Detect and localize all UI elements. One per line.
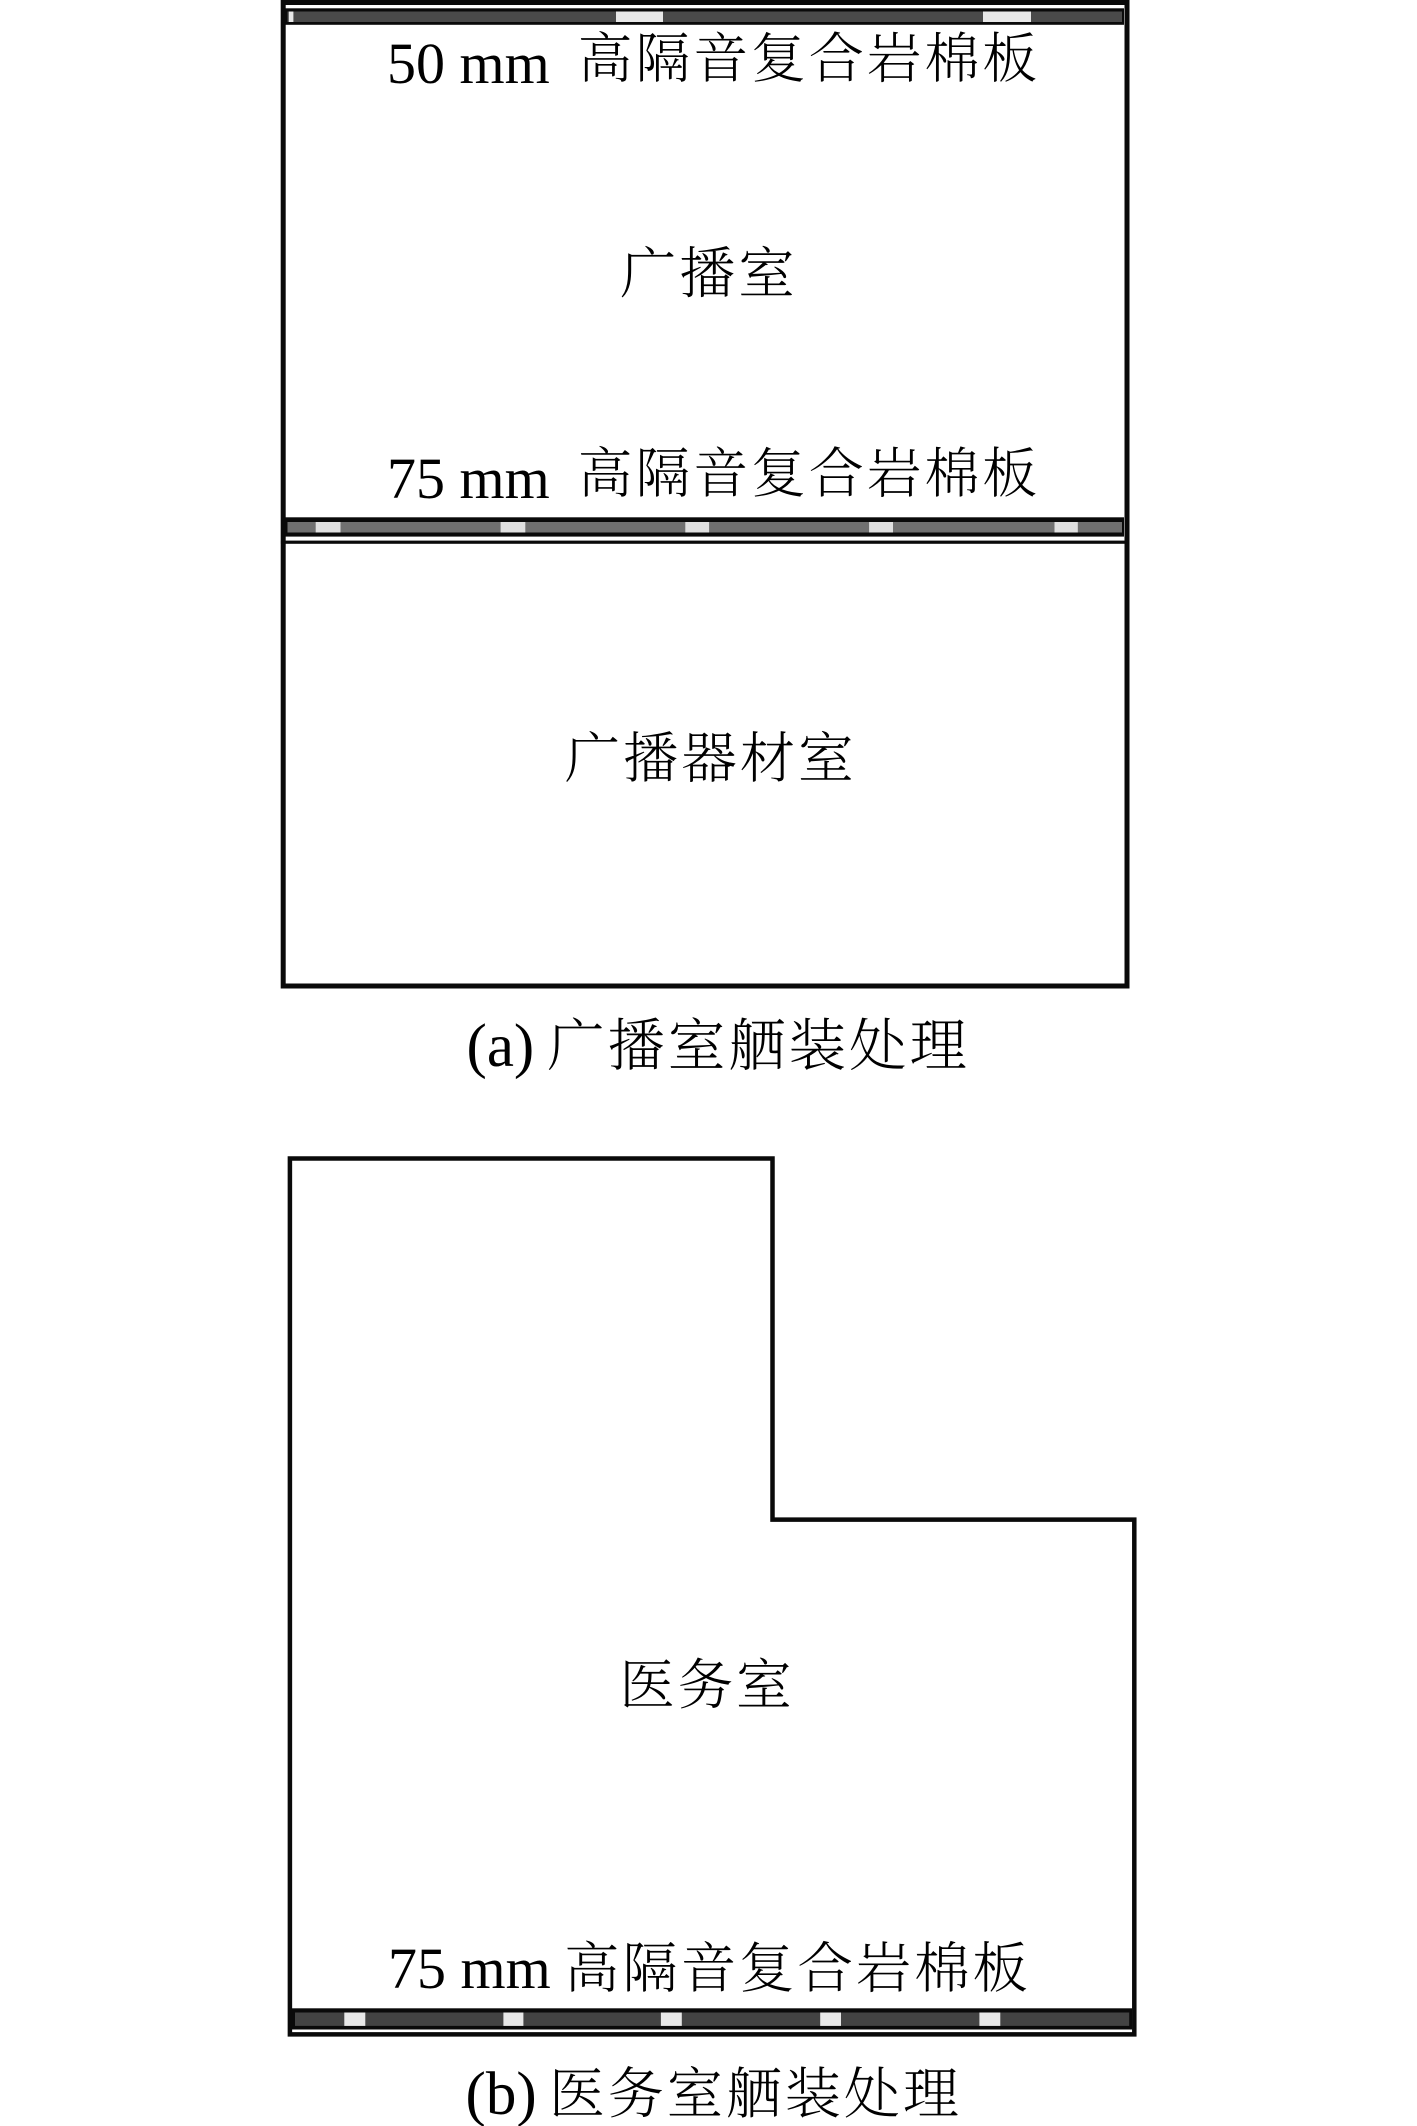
- svg-text:75 mm: 75 mm: [388, 1936, 551, 2001]
- svg-text:(a): (a): [467, 1013, 535, 1080]
- svg-text:75 mm: 75 mm: [387, 446, 550, 511]
- svg-text:50 mm: 50 mm: [387, 31, 550, 96]
- svg-text:(b): (b): [466, 2061, 537, 2126]
